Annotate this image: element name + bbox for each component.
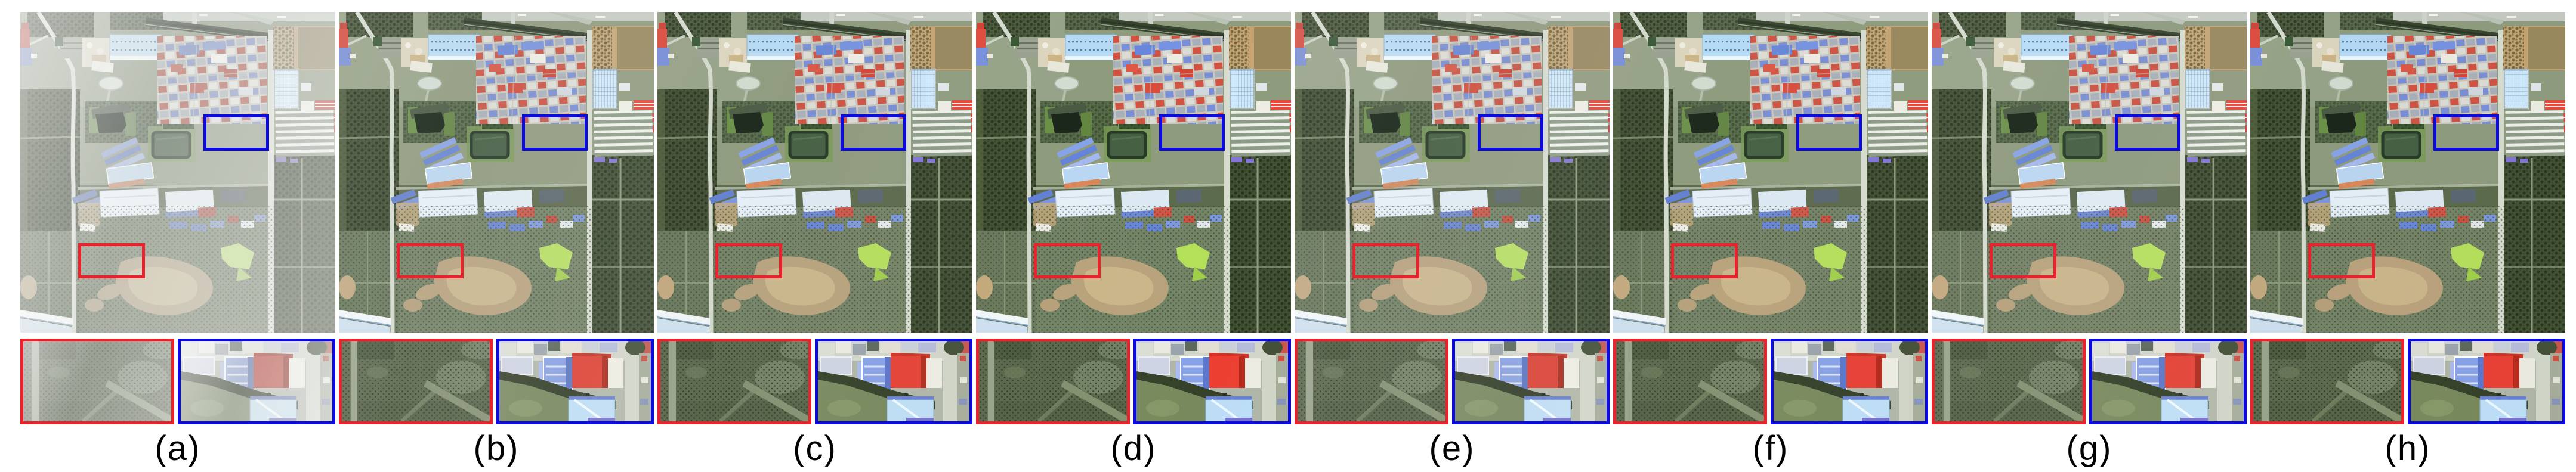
red-highlight-box <box>78 243 145 278</box>
comparison-panel-d: (d) <box>976 12 1291 472</box>
blue-crop-graphic <box>499 341 651 421</box>
satellite-scene-graphic <box>1932 12 2247 333</box>
blue-zoom-crop <box>2408 339 2565 424</box>
zoom-crops-row <box>2250 339 2565 424</box>
satellite-scene-graphic <box>657 12 972 333</box>
satellite-scene-graphic <box>2250 12 2565 333</box>
blue-zoom-crop <box>1771 339 1928 424</box>
blue-highlight-box <box>203 114 269 151</box>
red-zoom-crop <box>1613 339 1767 424</box>
panel-label: (h) <box>2250 424 2565 472</box>
satellite-scene-graphic <box>20 12 335 333</box>
red-crop-graphic <box>1616 341 1764 421</box>
blue-zoom-crop <box>178 339 335 424</box>
red-highlight-box <box>2308 243 2375 278</box>
panel-label: (c) <box>657 424 972 472</box>
comparison-panel-b: (b) <box>339 12 654 472</box>
blue-highlight-box <box>522 114 588 151</box>
blue-highlight-box <box>2433 114 2499 151</box>
blue-zoom-crop <box>496 339 654 424</box>
blue-zoom-crop <box>815 339 972 424</box>
red-zoom-crop <box>657 339 811 424</box>
satellite-image <box>1295 12 1610 333</box>
satellite-image <box>976 12 1291 333</box>
blue-highlight-box <box>1796 114 1862 151</box>
red-crop-graphic <box>23 341 171 421</box>
zoom-crops-row <box>1295 339 1610 424</box>
red-crop-graphic <box>1298 341 1445 421</box>
comparison-panel-e: (e) <box>1295 12 1610 472</box>
blue-highlight-box <box>1478 114 1543 151</box>
satellite-image <box>2250 12 2565 333</box>
red-zoom-crop <box>976 339 1130 424</box>
red-zoom-crop <box>1295 339 1448 424</box>
satellite-scene-graphic <box>339 12 654 333</box>
zoom-crops-row <box>1613 339 1928 424</box>
panel-label: (b) <box>339 424 654 472</box>
dehazing-comparison-figure: (a) (b) <box>0 0 2576 472</box>
red-zoom-crop <box>20 339 174 424</box>
satellite-scene-graphic <box>1613 12 1928 333</box>
red-highlight-box <box>1034 243 1101 278</box>
panel-label: (g) <box>1932 424 2247 472</box>
satellite-image <box>339 12 654 333</box>
red-highlight-box <box>397 243 464 278</box>
red-highlight-box <box>715 243 782 278</box>
comparison-panel-c: (c) <box>657 12 972 472</box>
satellite-image <box>1932 12 2247 333</box>
blue-zoom-crop <box>1133 339 1291 424</box>
blue-crop-graphic <box>1774 341 1925 421</box>
blue-crop-graphic <box>2411 341 2562 421</box>
red-crop-graphic <box>342 341 490 421</box>
satellite-scene-graphic <box>1295 12 1610 333</box>
satellite-image <box>1613 12 1928 333</box>
zoom-crops-row <box>20 339 335 424</box>
zoom-crops-row <box>339 339 654 424</box>
blue-crop-graphic <box>181 341 332 421</box>
panel-label: (a) <box>20 424 335 472</box>
red-crop-graphic <box>979 341 1127 421</box>
satellite-scene-graphic <box>976 12 1291 333</box>
red-crop-graphic <box>1935 341 2083 421</box>
red-zoom-crop <box>339 339 493 424</box>
comparison-panel-a: (a) <box>20 12 335 472</box>
red-crop-graphic <box>2253 341 2401 421</box>
blue-highlight-box <box>1159 114 1225 151</box>
blue-crop-graphic <box>818 341 969 421</box>
red-highlight-box <box>1352 243 1419 278</box>
red-zoom-crop <box>1932 339 2086 424</box>
zoom-crops-row <box>976 339 1291 424</box>
zoom-crops-row <box>1932 339 2247 424</box>
comparison-panel-f: (f) <box>1613 12 1928 472</box>
blue-crop-graphic <box>1455 341 1607 421</box>
blue-zoom-crop <box>2089 339 2247 424</box>
blue-highlight-box <box>841 114 906 151</box>
panel-label: (f) <box>1613 424 1928 472</box>
satellite-image <box>657 12 972 333</box>
comparison-panel-h: (h) <box>2250 12 2565 472</box>
red-crop-graphic <box>660 341 808 421</box>
comparison-panel-g: (g) <box>1932 12 2247 472</box>
red-zoom-crop <box>2250 339 2404 424</box>
satellite-image <box>20 12 335 333</box>
blue-crop-graphic <box>2092 341 2244 421</box>
zoom-crops-row <box>657 339 972 424</box>
blue-crop-graphic <box>1136 341 1288 421</box>
red-highlight-box <box>1671 243 1738 278</box>
blue-highlight-box <box>2115 114 2180 151</box>
blue-zoom-crop <box>1452 339 1610 424</box>
panel-label: (d) <box>976 424 1291 472</box>
red-highlight-box <box>1990 243 2056 278</box>
panel-label: (e) <box>1295 424 1610 472</box>
